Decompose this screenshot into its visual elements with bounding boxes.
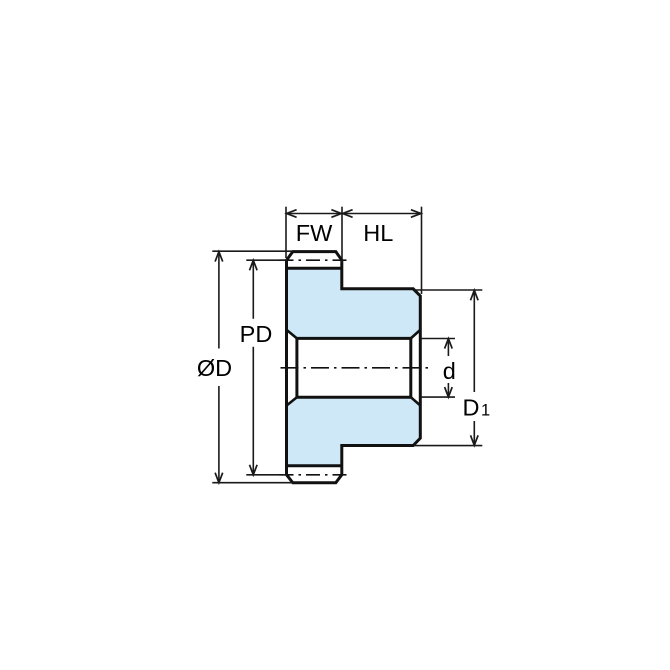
- svg-text:ØD: ØD: [197, 355, 232, 381]
- svg-text:PD: PD: [240, 321, 273, 347]
- svg-text:FW: FW: [296, 220, 333, 246]
- svg-text:d: d: [443, 358, 456, 384]
- svg-text:HL: HL: [363, 220, 393, 246]
